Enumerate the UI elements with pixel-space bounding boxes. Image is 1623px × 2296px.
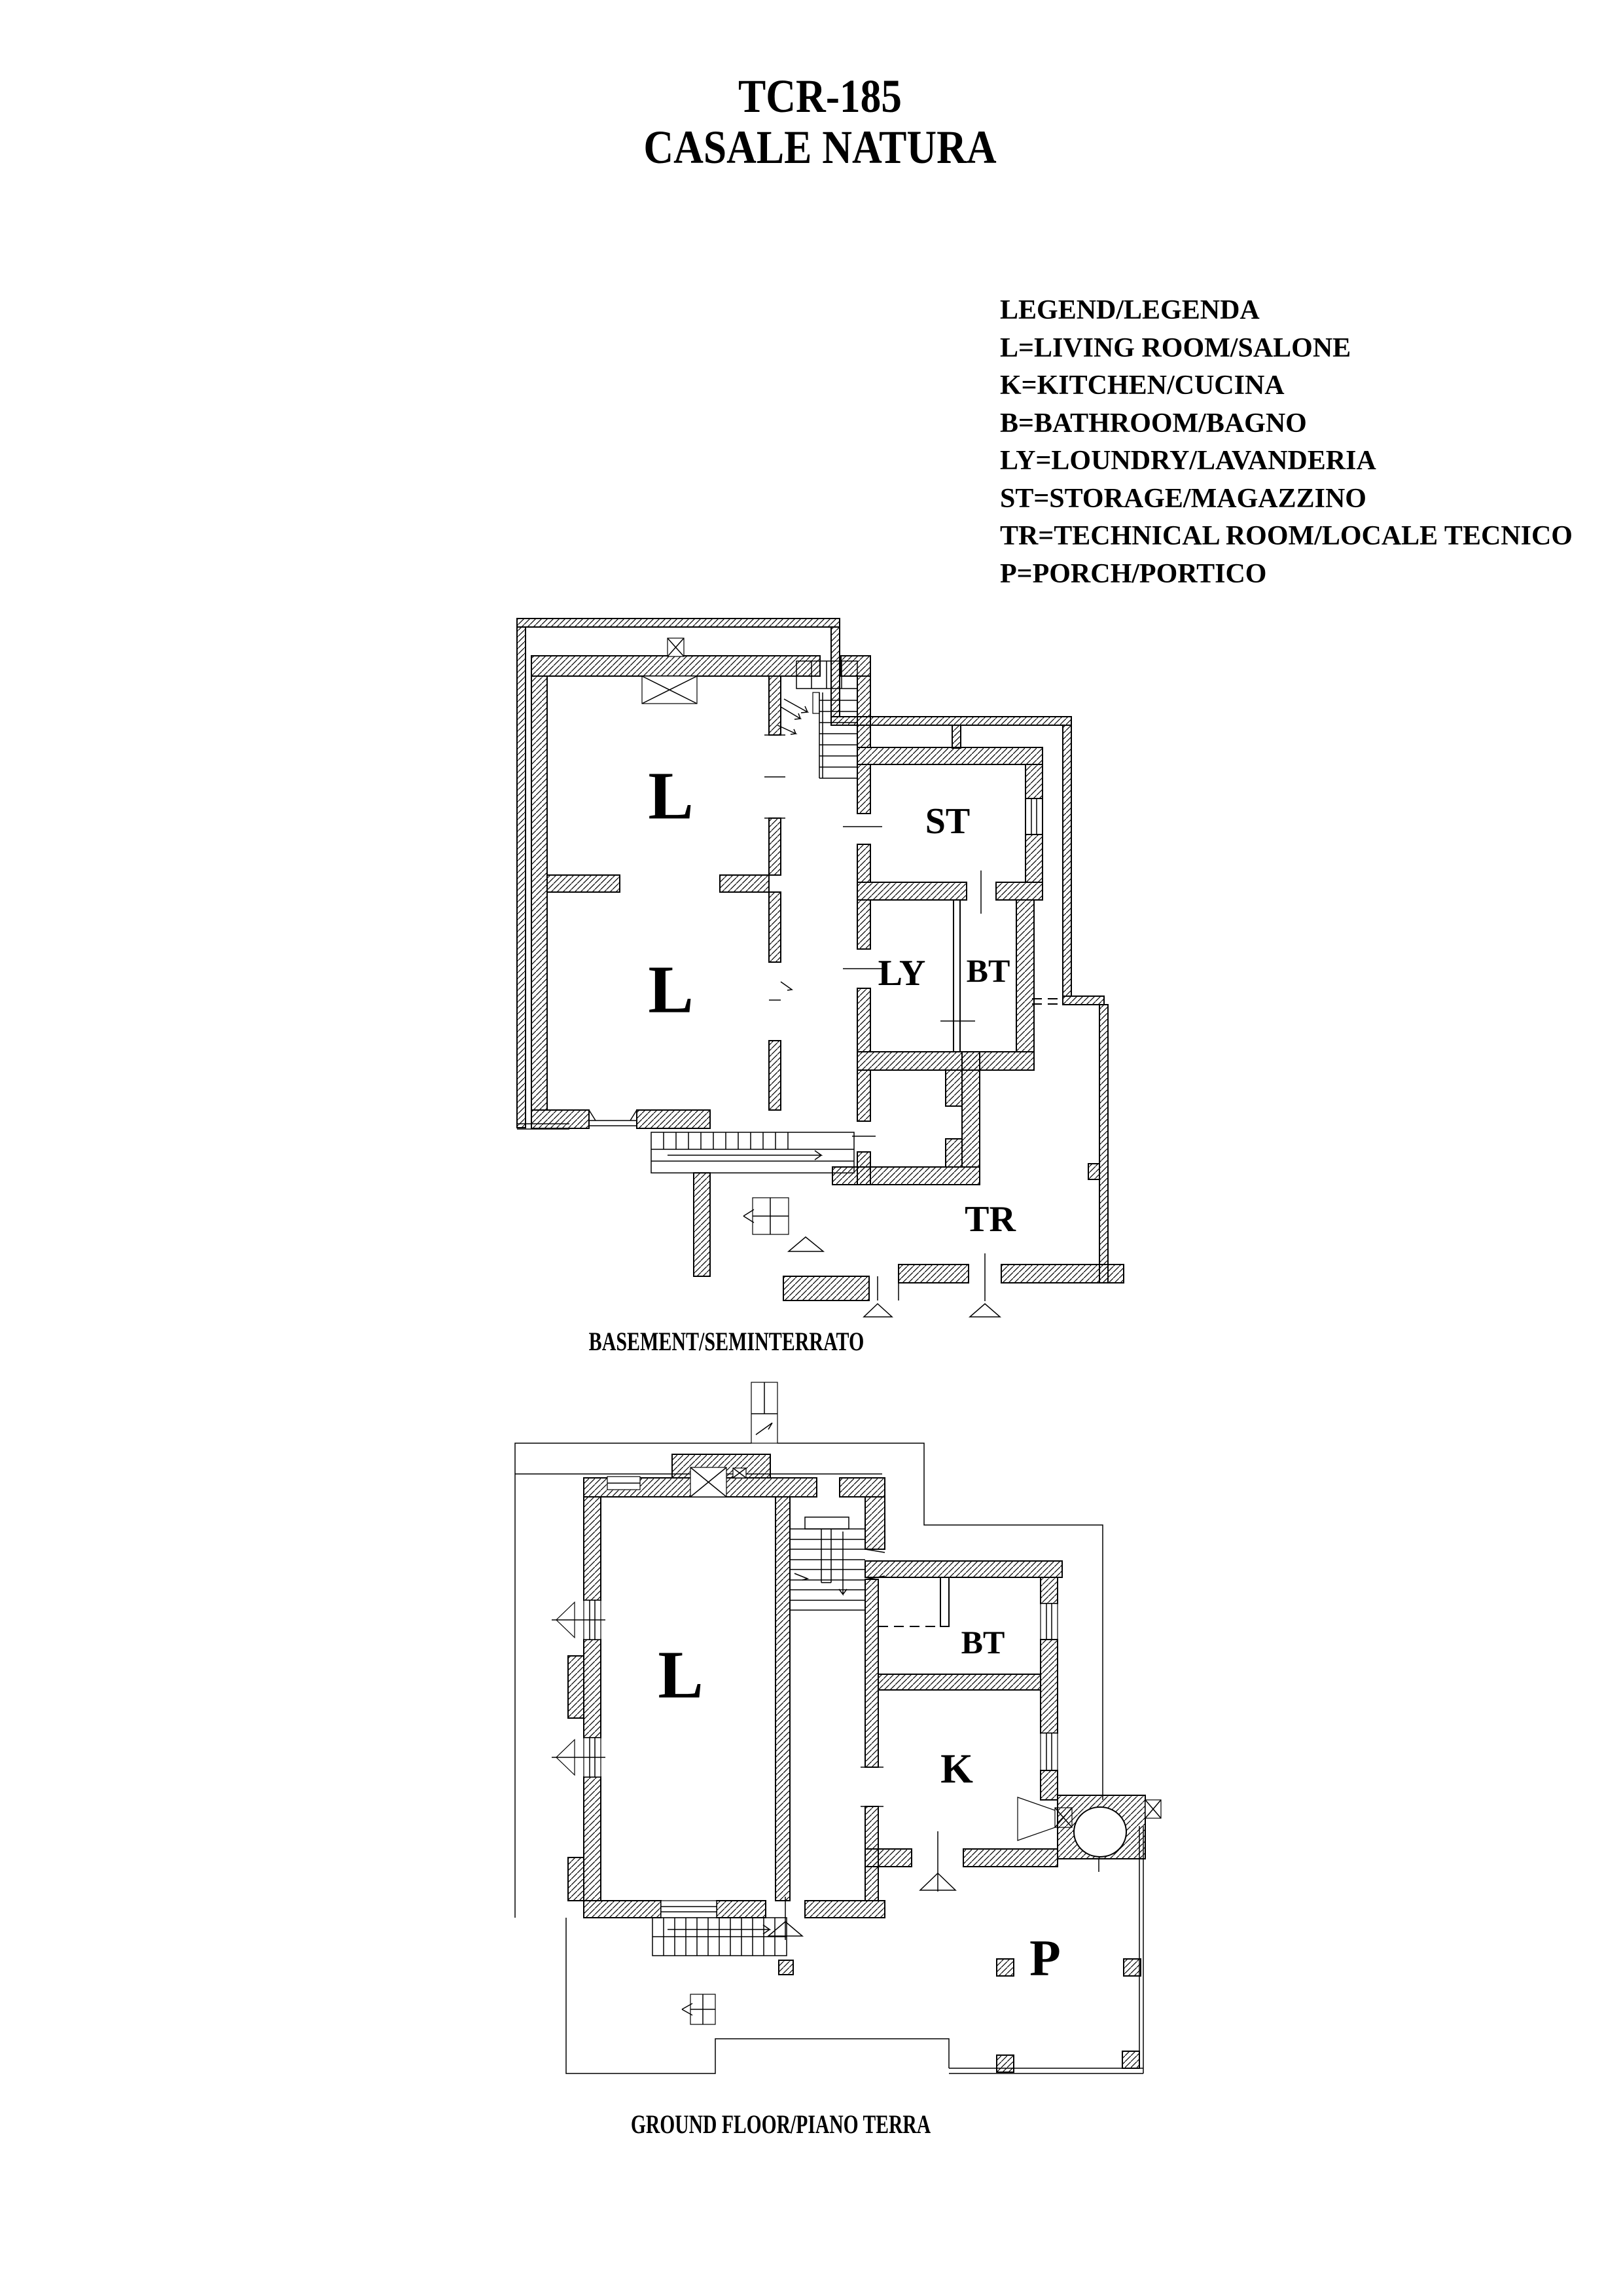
basement-caption: BASEMENT/SEMINTERRATO [589,1326,865,1357]
legend-line: ST=STORAGE/MAGAZZINO [1000,480,1573,518]
ground-floor-caption: GROUND FLOOR/PIANO TERRA [631,2109,931,2140]
basement-room-label-living-lower: L [648,951,693,1029]
ground-chimney [751,1382,777,1443]
ground-stair-bay [776,1497,885,1901]
basement-room-label-technical: TR [965,1198,1016,1240]
legend: LEGEND/LEGENDA L=LIVING ROOM/SALONE K=KI… [1000,292,1573,593]
legend-line: B=BATHROOM/BAGNO [1000,405,1573,443]
document-title: TCR-185 CASALE NATURA [493,71,1147,173]
basement-partition-wall [547,875,769,892]
legend-line: K=KITCHEN/CUCINA [1000,367,1573,405]
basement-room-label-storage: ST [925,800,971,842]
basement-room-label-laundry: LY [878,952,926,994]
ground-wing-walls [768,1561,1062,1936]
ground-exterior-walls [552,1454,885,1940]
legend-line: LEGEND/LEGENDA [1000,292,1573,330]
plan-code: TCR-185 [532,71,1108,122]
ground-room-label-bath: BT [961,1623,1005,1661]
plan-name: CASALE NATURA [532,122,1108,173]
basement-room-label-bath: BT [967,952,1010,990]
legend-line: L=LIVING ROOM/SALONE [1000,330,1573,368]
ground-floor-plan-drawing [497,1374,1204,2121]
ground-room-label-porch: P [1029,1929,1061,1988]
basement-room-label-living-upper: L [648,757,693,835]
legend-line: TR=TECHNICAL ROOM/LOCALE TECNICO [1000,518,1573,556]
ground-room-label-kitchen: K [940,1744,973,1793]
legend-line: P=PORCH/PORTICO [1000,556,1573,594]
basement-window-and-door-symbols [743,1198,1000,1317]
ground-room-label-living: L [658,1636,703,1714]
ground-exterior-stairs [652,1918,793,2024]
legend-line: LY=LOUNDRY/LAVANDERIA [1000,442,1573,480]
basement-corridor-left-wall [764,676,800,1110]
basement-floor-plan-drawing [497,602,1204,1348]
ground-boundary-lines [515,1443,1103,2073]
basement-wing-walls [857,747,1043,1070]
